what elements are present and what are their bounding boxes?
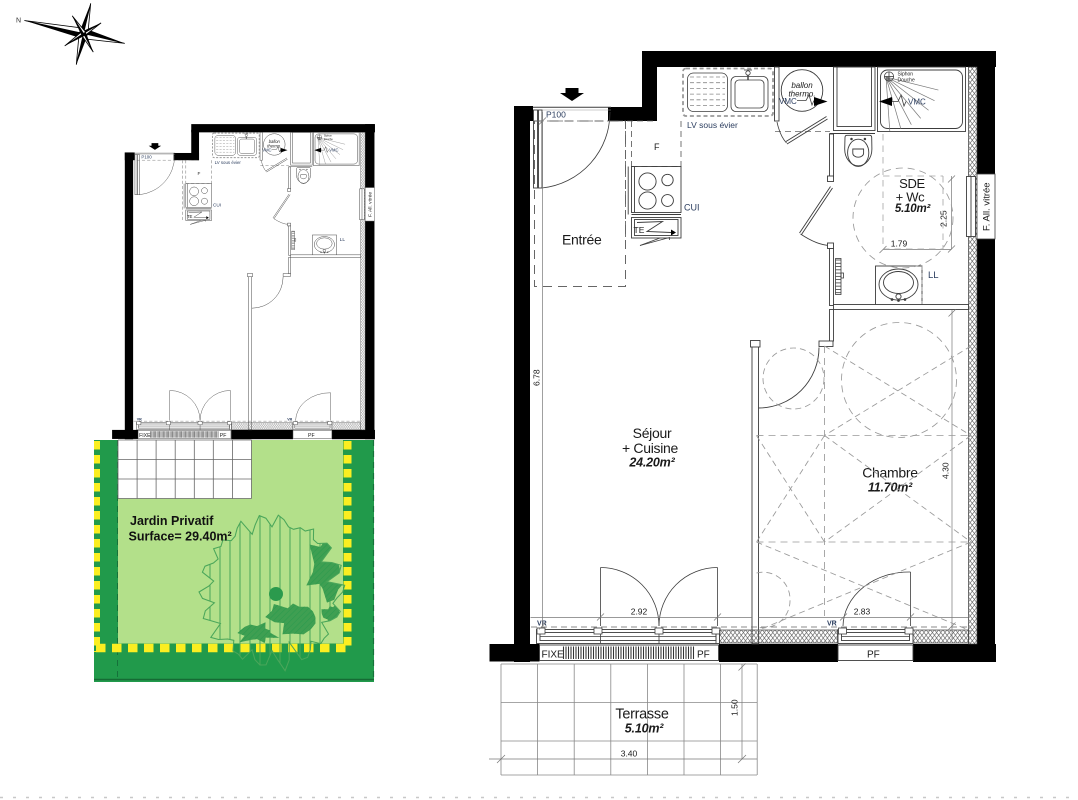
svg-text:1.79: 1.79 [891, 239, 908, 249]
svg-text:3.40: 3.40 [621, 749, 638, 759]
svg-text:5.10m²: 5.10m² [625, 722, 664, 736]
svg-text:Jardin Privatif: Jardin Privatif [130, 514, 214, 528]
svg-text:24.20m²: 24.20m² [628, 456, 675, 470]
svg-text:6.78: 6.78 [532, 369, 542, 386]
svg-text:N: N [16, 17, 21, 24]
svg-text:Séjour: Séjour [633, 425, 672, 441]
svg-text:Entrée: Entrée [562, 232, 602, 248]
svg-text:5.10m²: 5.10m² [895, 203, 932, 215]
svg-text:2.92: 2.92 [631, 607, 648, 617]
svg-text:2.25: 2.25 [939, 210, 949, 227]
svg-text:Chambre: Chambre [862, 465, 918, 481]
svg-text:Terrasse: Terrasse [615, 707, 668, 723]
svg-text:11.70m²: 11.70m² [868, 481, 913, 495]
svg-text:Surface= 29.40m²: Surface= 29.40m² [129, 530, 232, 544]
svg-text:+ Cuisine: + Cuisine [622, 440, 679, 456]
svg-text:4.30: 4.30 [941, 462, 951, 479]
svg-text:2.83: 2.83 [854, 607, 871, 617]
svg-text:1.50: 1.50 [730, 699, 740, 716]
